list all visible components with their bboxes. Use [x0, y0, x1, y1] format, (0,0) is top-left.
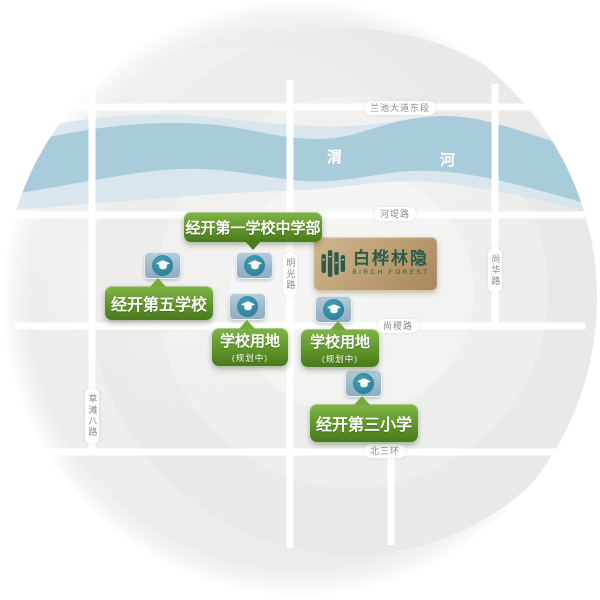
- school-marker-no1-middle: [236, 252, 273, 279]
- poi-text: 经开第五学校: [111, 291, 207, 315]
- pointer-up-icon: [150, 278, 166, 287]
- road-label-hedi: 河堤路: [374, 207, 416, 221]
- poi-subtext: (规划中): [322, 353, 358, 365]
- birch-trees-logo-icon: [321, 250, 346, 277]
- poi-subtext: (规划中): [232, 352, 268, 364]
- road-label-beisanhuan: 北三环: [364, 444, 406, 458]
- road-label-shangji: 尚稷路: [377, 319, 419, 333]
- poi-label-no5-school: 经开第五学校: [105, 286, 213, 320]
- school-marker-planned-west: [229, 293, 266, 320]
- school-marker-no5: [144, 252, 181, 279]
- school-marker-no3-primary: [345, 370, 382, 397]
- project-plate: 白桦林隐 BIRCH FOREST: [314, 237, 437, 290]
- poi-text: 经开第一学校中学部: [185, 217, 320, 238]
- road-label-lanchi: 兰池大道东段: [364, 101, 436, 115]
- location-map: 渭 河 兰池大道东段 河堤路 明光路 尚华路 尚稷路 草滩八路 北三环: [0, 0, 600, 600]
- project-names: 白桦林隐 BIRCH FOREST: [352, 250, 429, 277]
- graduation-cap-icon: [152, 255, 173, 276]
- school-marker-planned-east: [315, 296, 352, 323]
- poi-text: 学校用地: [310, 331, 370, 352]
- pointer-up-icon: [330, 321, 346, 330]
- road-label-shanghua: 尚华路: [488, 248, 502, 293]
- graduation-cap-icon: [323, 299, 344, 320]
- pointer-up-icon: [354, 396, 370, 405]
- poi-label-planned-school-east: 学校用地 (规划中): [301, 329, 379, 367]
- road-label-mingguang: 明光路: [283, 252, 297, 297]
- road-label-caotan: 草滩八路: [85, 388, 99, 444]
- pointer-down-icon: [245, 241, 261, 250]
- graduation-cap-icon: [244, 255, 265, 276]
- graduation-cap-icon: [237, 296, 258, 317]
- pointer-up-icon: [239, 320, 255, 329]
- poi-label-no1-middle-school: 经开第一学校中学部: [184, 212, 322, 242]
- river-name-right: 河: [440, 149, 455, 170]
- poi-text: 经开第三小学: [316, 411, 412, 435]
- graduation-cap-icon: [353, 373, 374, 394]
- project-name-cn: 白桦林隐: [353, 250, 429, 267]
- poi-label-no3-primary-school: 经开第三小学: [310, 404, 418, 442]
- poi-text: 学校用地: [220, 330, 280, 351]
- map-background: [0, 0, 600, 600]
- project-name-en: BIRCH FOREST: [352, 270, 429, 277]
- river-name-left: 渭: [327, 146, 342, 167]
- poi-label-planned-school-west: 学校用地 (规划中): [212, 328, 288, 366]
